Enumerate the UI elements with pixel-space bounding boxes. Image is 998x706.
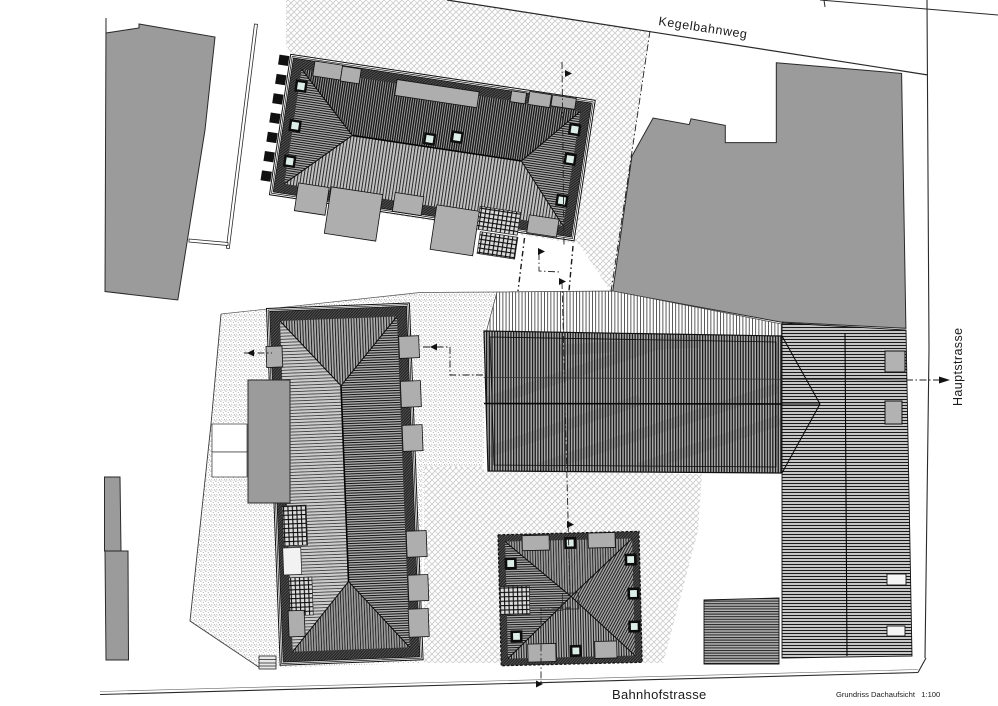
svg-text:Grundriss Dachaufsicht 1:100: Grundriss Dachaufsicht 1:100 [836, 690, 940, 699]
svg-text:Bahnhofstrasse: Bahnhofstrasse [612, 687, 707, 702]
svg-text:Hauptstrasse: Hauptstrasse [951, 328, 965, 406]
